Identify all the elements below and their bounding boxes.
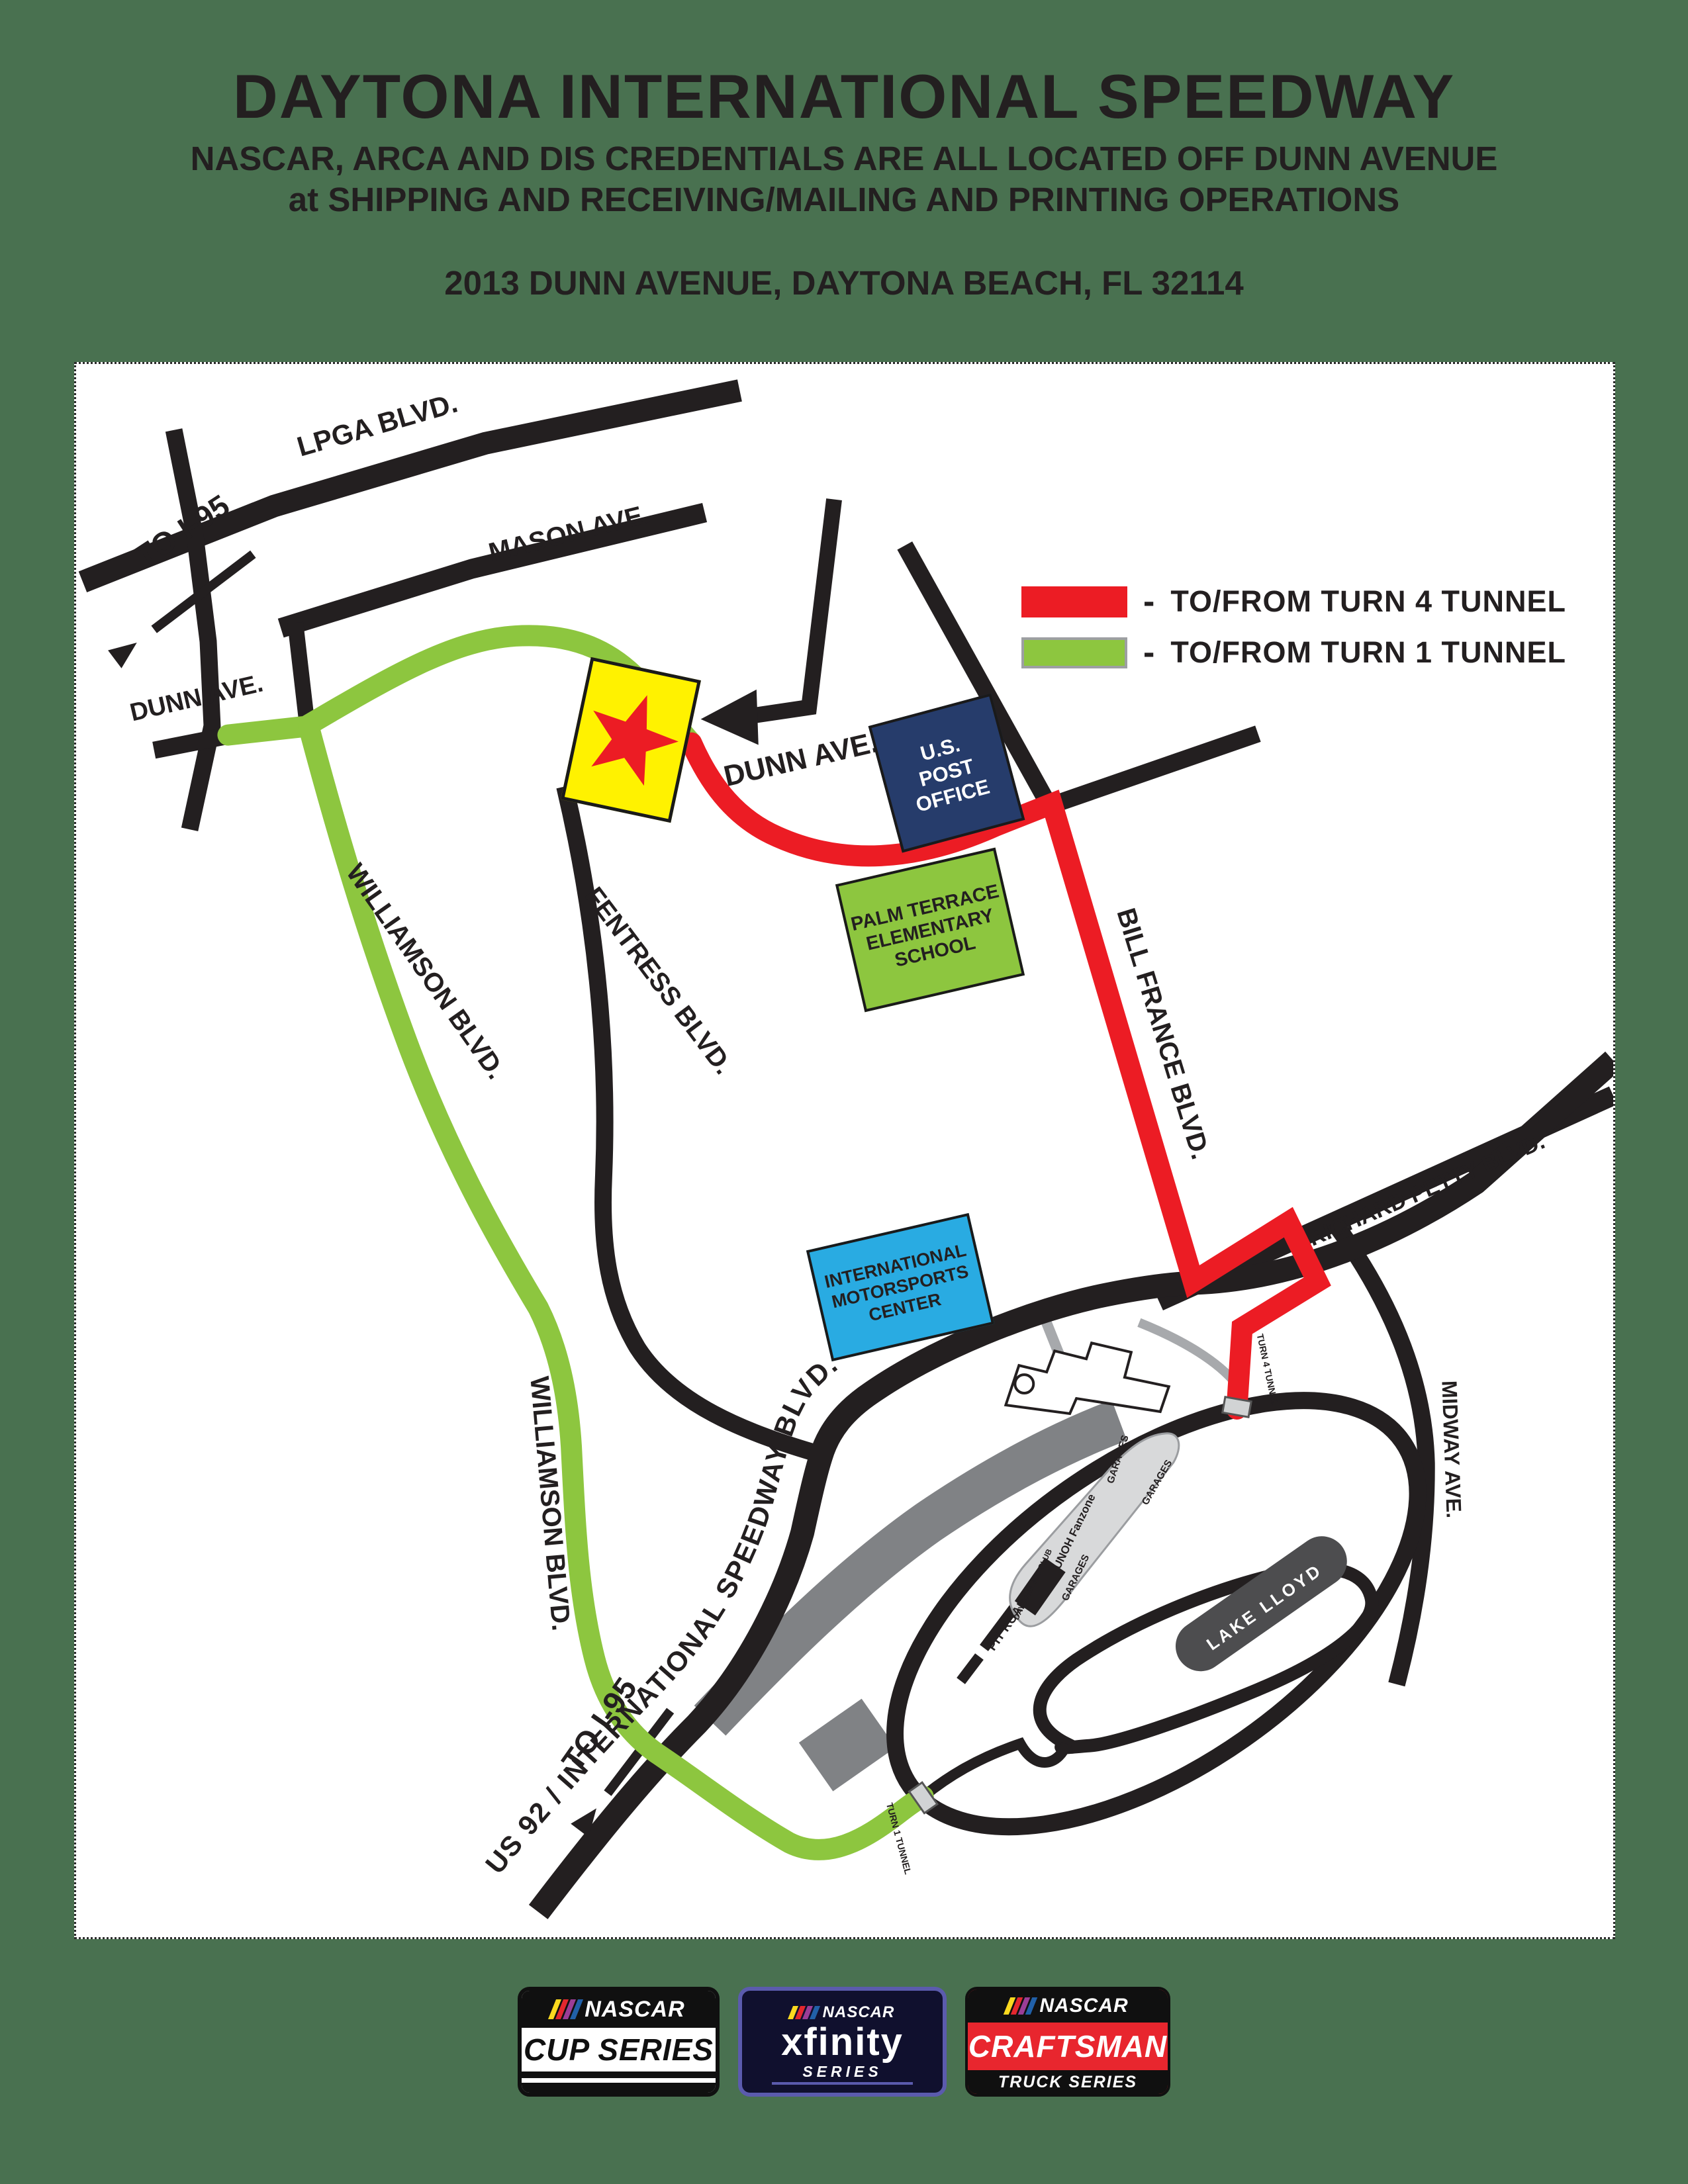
page-title: DAYTONA INTERNATIONAL SPEEDWAY <box>0 61 1688 132</box>
nascar-mark-icon: NASCAR <box>552 1997 684 2023</box>
road-north-south <box>174 430 212 829</box>
truck-series-label: TRUCK SERIES <box>968 2070 1168 2094</box>
cup-series-label: CUP SERIES <box>522 2028 716 2071</box>
xfinity-series-label: SERIES <box>802 2063 882 2081</box>
xfinity-rule <box>772 2082 912 2085</box>
ticket-building-detail <box>1015 1375 1033 1393</box>
legend-label-turn4: TO/FROM TURN 4 TUNNEL <box>1170 584 1566 619</box>
destination-arrow-line <box>751 500 834 716</box>
star-icon <box>568 677 694 803</box>
nascar-bars-icon <box>552 1999 579 2019</box>
turn4-tunnel-icon <box>1223 1397 1251 1418</box>
tunnel-road-gray <box>1139 1322 1237 1384</box>
subtitle-line-2: at SHIPPING AND RECEIVING/MAILING AND PR… <box>0 180 1688 219</box>
craftsman-name-label: CRAFTSMAN <box>968 2023 1168 2070</box>
nascar-bars-icon <box>790 2006 818 2019</box>
legend-swatch-turn1 <box>1021 637 1127 668</box>
legend-label-turn1: TO/FROM TURN 1 TUNNEL <box>1170 635 1566 670</box>
address-line: 2013 DUNN AVENUE, DAYTONA BEACH, FL 3211… <box>0 263 1688 302</box>
route-turn4 <box>692 743 1318 1409</box>
road-mason-stub <box>295 623 307 726</box>
to-i95-top-arrow-head <box>108 633 144 668</box>
legend-separator-2: - <box>1143 635 1154 670</box>
legend-row-turn1: - TO/FROM TURN 1 TUNNEL <box>1021 635 1566 670</box>
subtitle-line-1: NASCAR, ARCA AND DIS CREDENTIALS ARE ALL… <box>0 139 1688 178</box>
nascar-mark-icon: NASCAR <box>790 2003 895 2022</box>
road-dunn-east-black <box>1052 734 1258 805</box>
xfinity-name-label: xfinity <box>781 2023 904 2062</box>
grandstand-block <box>799 1699 896 1792</box>
nascar-cup-series-logo: NASCAR CUP SERIES <box>518 1987 720 2097</box>
map-panel: US 92 / INTERNATIONAL SPEEDWAY BLVD. LPG… <box>74 362 1615 1939</box>
road-label-midway: MIDWAY AVE. <box>1438 1380 1464 1518</box>
nascar-bars-icon <box>1007 1997 1034 2015</box>
destination-arrow-head <box>700 690 759 747</box>
nascar-wordmark: NASCAR <box>585 1997 684 2023</box>
nascar-wordmark: NASCAR <box>1039 1995 1128 2017</box>
nascar-xfinity-series-logo: NASCAR xfinity SERIES <box>738 1987 947 2097</box>
nascar-mark-icon: NASCAR <box>1007 1995 1128 2017</box>
legend: - TO/FROM TURN 4 TUNNEL - TO/FROM TURN 1… <box>1021 584 1566 670</box>
legend-row-turn4: - TO/FROM TURN 4 TUNNEL <box>1021 584 1566 619</box>
nascar-craftsman-truck-series-logo: NASCAR CRAFTSMAN TRUCK SERIES <box>965 1987 1170 2097</box>
nascar-wordmark: NASCAR <box>823 2003 895 2022</box>
track-turn1-access <box>923 1744 1066 1797</box>
legend-swatch-turn4 <box>1021 586 1127 617</box>
series-logos: NASCAR CUP SERIES NASCAR xfinity SERIES … <box>0 1987 1688 2097</box>
legend-separator-1: - <box>1143 584 1154 619</box>
